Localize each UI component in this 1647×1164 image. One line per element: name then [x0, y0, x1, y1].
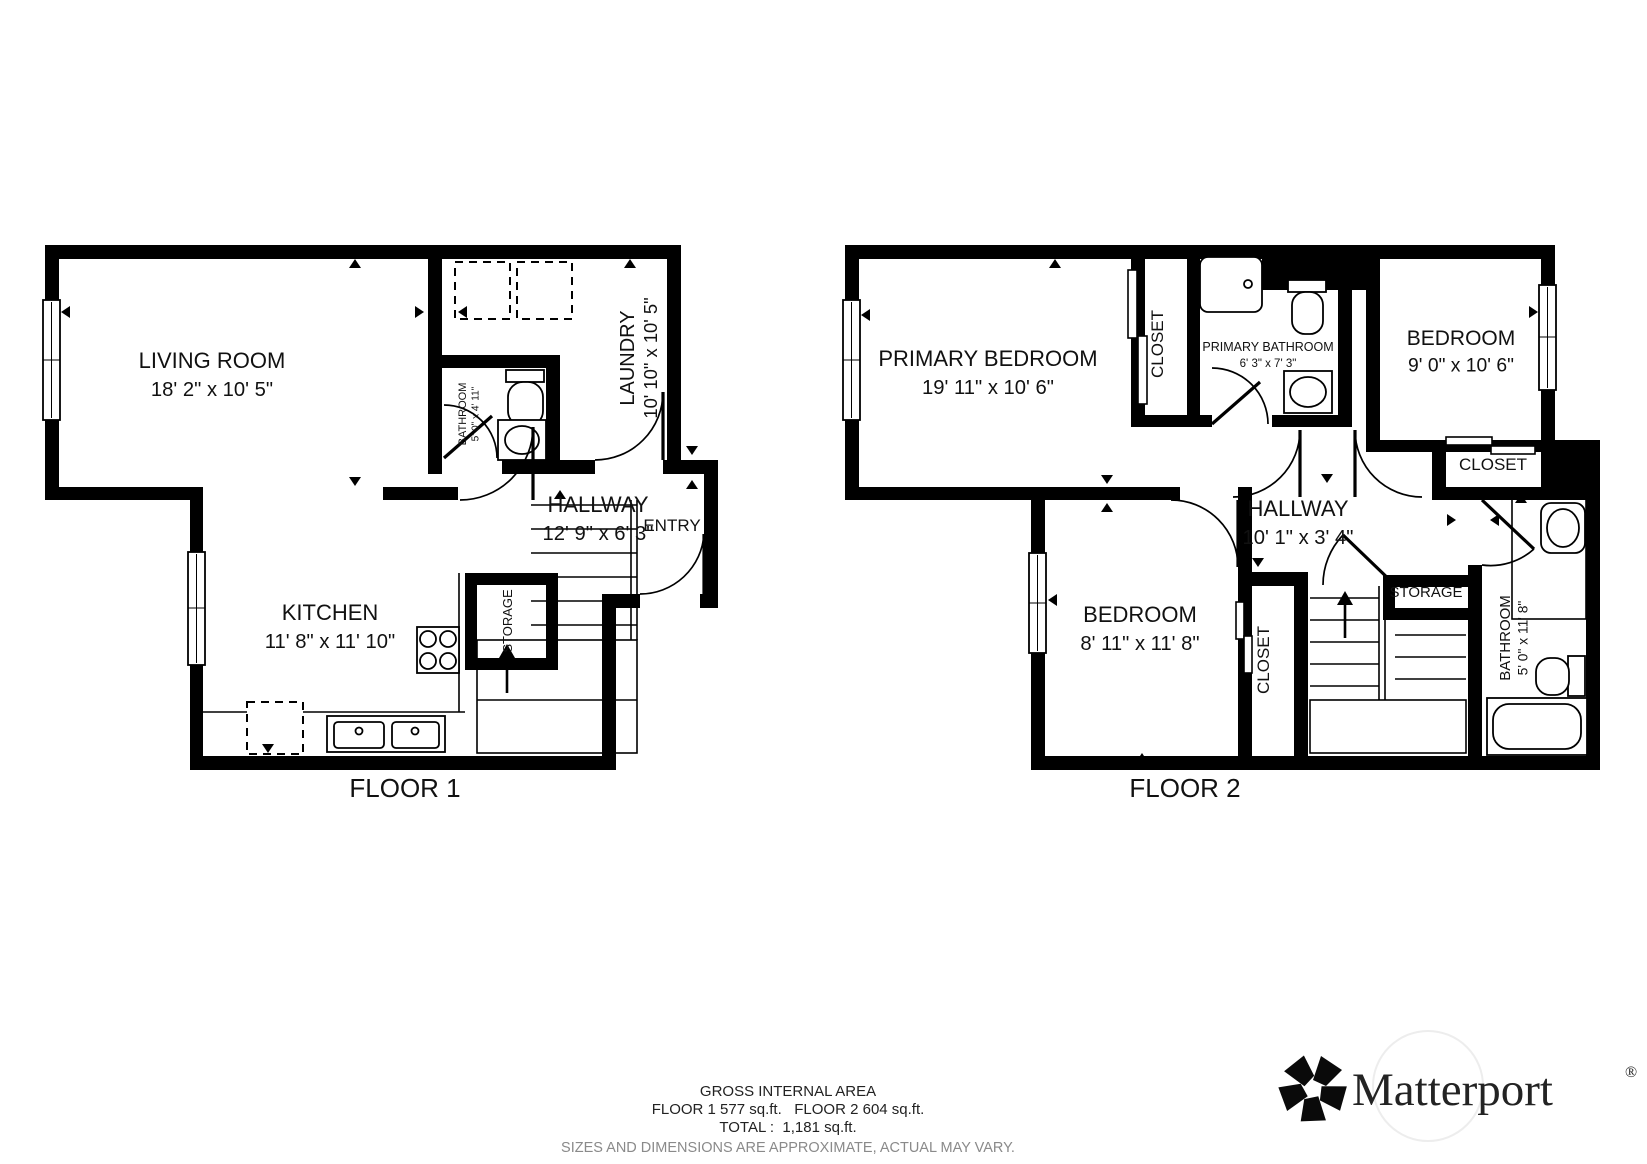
room-dims-living-room: 18' 2" x 10' 5" — [151, 379, 273, 401]
room-dims-bedroom: 9' 0" x 10' 6" — [1408, 356, 1514, 377]
room-name-bedroom: BEDROOM — [1407, 327, 1516, 350]
disclaimer-label: SIZES AND DIMENSIONS ARE APPROXIMATE, AC… — [561, 1140, 1015, 1156]
dryer-icon — [517, 262, 572, 319]
wall-segment — [704, 460, 718, 608]
room-name-closet: CLOSET — [1459, 455, 1527, 474]
room-dims-laundry: 10' 10" x 10' 5" — [640, 297, 661, 418]
wall-segment — [845, 487, 1045, 500]
dishwasher-icon — [247, 702, 303, 754]
room-name-storage: STORAGE — [500, 589, 515, 653]
wall-segment — [1031, 756, 1600, 770]
wall-segment — [465, 573, 477, 670]
room-dims-hallway: 10' 1" x 3' 4" — [1243, 527, 1354, 549]
door-primary-bathroom — [1212, 368, 1268, 424]
window-living-room — [43, 300, 60, 420]
footer-area-summary: GROSS INTERNAL AREA FLOOR 1 577 sq.ft. F… — [561, 1083, 1015, 1156]
wall-segment — [602, 601, 616, 770]
bathtub-icon — [1487, 698, 1587, 755]
wall-segment — [1238, 572, 1308, 586]
window-kitchen — [188, 552, 205, 665]
door-bedroom-left — [1171, 500, 1238, 567]
gross-internal-area-label: GROSS INTERNAL AREA — [700, 1083, 876, 1100]
wall-segment — [1131, 415, 1212, 427]
room-name-living-room: LIVING ROOM — [139, 348, 286, 373]
wall-segment — [383, 487, 458, 500]
toilet-icon — [506, 370, 544, 426]
wall-segment — [45, 487, 203, 500]
window-bedroom-right — [1539, 285, 1556, 390]
door-primary-bedroom — [1233, 430, 1300, 497]
room-name-entry: ENTRY — [643, 516, 700, 535]
wall-segment — [667, 245, 681, 474]
sink-icon-primary — [1284, 371, 1332, 413]
room-name-bedroom: BEDROOM — [1083, 602, 1197, 627]
shower-icon — [1200, 257, 1262, 312]
room-dims-bathroom: 5' 0" x 11' 8" — [1515, 601, 1530, 676]
room-dims-bedroom: 8' 11" x 11' 8" — [1080, 633, 1199, 655]
room-labels: LIVING ROOM18' 2" x 10' 5"KITCHEN11' 8" … — [139, 297, 1531, 694]
wall-segment — [1294, 572, 1308, 770]
room-dims-bathroom: 5' 0" x 4' 11" — [471, 386, 482, 441]
room-name-hallway: HALLWAY — [547, 492, 648, 517]
wall-segment — [465, 658, 558, 670]
wall-segment — [1045, 487, 1180, 500]
wall-segment — [1468, 565, 1482, 770]
floor2-walls — [845, 245, 1600, 770]
wall-segment — [1366, 290, 1380, 452]
room-name-bathroom: BATHROOM — [457, 383, 469, 446]
door-bathroom2 — [1482, 500, 1534, 566]
wall-segment — [546, 355, 560, 474]
floorplan-canvas: LIVING ROOM18' 2" x 10' 5"KITCHEN11' 8" … — [0, 0, 1647, 1164]
room-name-closet: CLOSET — [1254, 626, 1273, 694]
wall-segment — [45, 245, 681, 259]
matterport-wordmark: Matterport — [1352, 1064, 1553, 1116]
wall-segment — [1432, 487, 1600, 500]
wall-segment — [546, 573, 558, 670]
wall-segment — [465, 573, 558, 585]
wall-segment — [1187, 245, 1200, 427]
window-bedroom-left — [1029, 553, 1046, 653]
floor1-caption: FLOOR 1 — [349, 773, 460, 803]
room-name-primary-bedroom: PRIMARY BEDROOM — [878, 346, 1097, 371]
wall-segment — [428, 355, 560, 368]
room-name-hallway: HALLWAY — [1247, 496, 1348, 521]
stove-icon — [417, 627, 459, 673]
wall-segment — [663, 460, 681, 474]
window-primary-bedroom — [843, 300, 860, 420]
wall-segment — [190, 756, 616, 770]
room-dims-primary-bathroom: 6' 3" x 7' 3" — [1240, 358, 1297, 370]
room-name-closet: CLOSET — [1148, 310, 1167, 378]
room-dims-kitchen: 11' 8" x 11' 10" — [265, 631, 395, 653]
wall-segment — [502, 460, 595, 474]
room-name-laundry: LAUNDRY — [617, 310, 639, 405]
floor-areas-label: FLOOR 1 577 sq.ft. FLOOR 2 604 sq.ft. — [652, 1101, 925, 1118]
matterport-logo: Matterport ® — [1270, 1031, 1637, 1141]
room-name-storage: STORAGE — [1389, 584, 1462, 601]
floorplan-page: LIVING ROOM18' 2" x 10' 5"KITCHEN11' 8" … — [0, 0, 1647, 1164]
room-name-primary-bathroom: PRIMARY BATHROOM — [1202, 340, 1333, 354]
room-dims-hallway: 12' 9" x 6' 3" — [543, 523, 654, 545]
total-area-label: TOTAL : 1,181 sq.ft. — [719, 1119, 856, 1136]
registered-mark: ® — [1625, 1064, 1637, 1081]
room-dims-primary-bedroom: 19' 11" x 10' 6" — [922, 377, 1054, 399]
sink-icon — [498, 420, 546, 460]
floor2-plan — [843, 245, 1600, 770]
room-name-kitchen: KITCHEN — [282, 600, 379, 625]
floor2-caption: FLOOR 2 — [1129, 773, 1240, 803]
wall-segment — [1383, 608, 1468, 620]
toilet-icon-primary — [1288, 280, 1326, 334]
kitchen-sink-icon — [327, 716, 445, 752]
wall-segment — [1586, 460, 1600, 770]
room-name-bathroom: BATHROOM — [1497, 595, 1514, 681]
matterport-icon — [1270, 1051, 1353, 1133]
toilet-icon-bath2 — [1536, 656, 1585, 696]
